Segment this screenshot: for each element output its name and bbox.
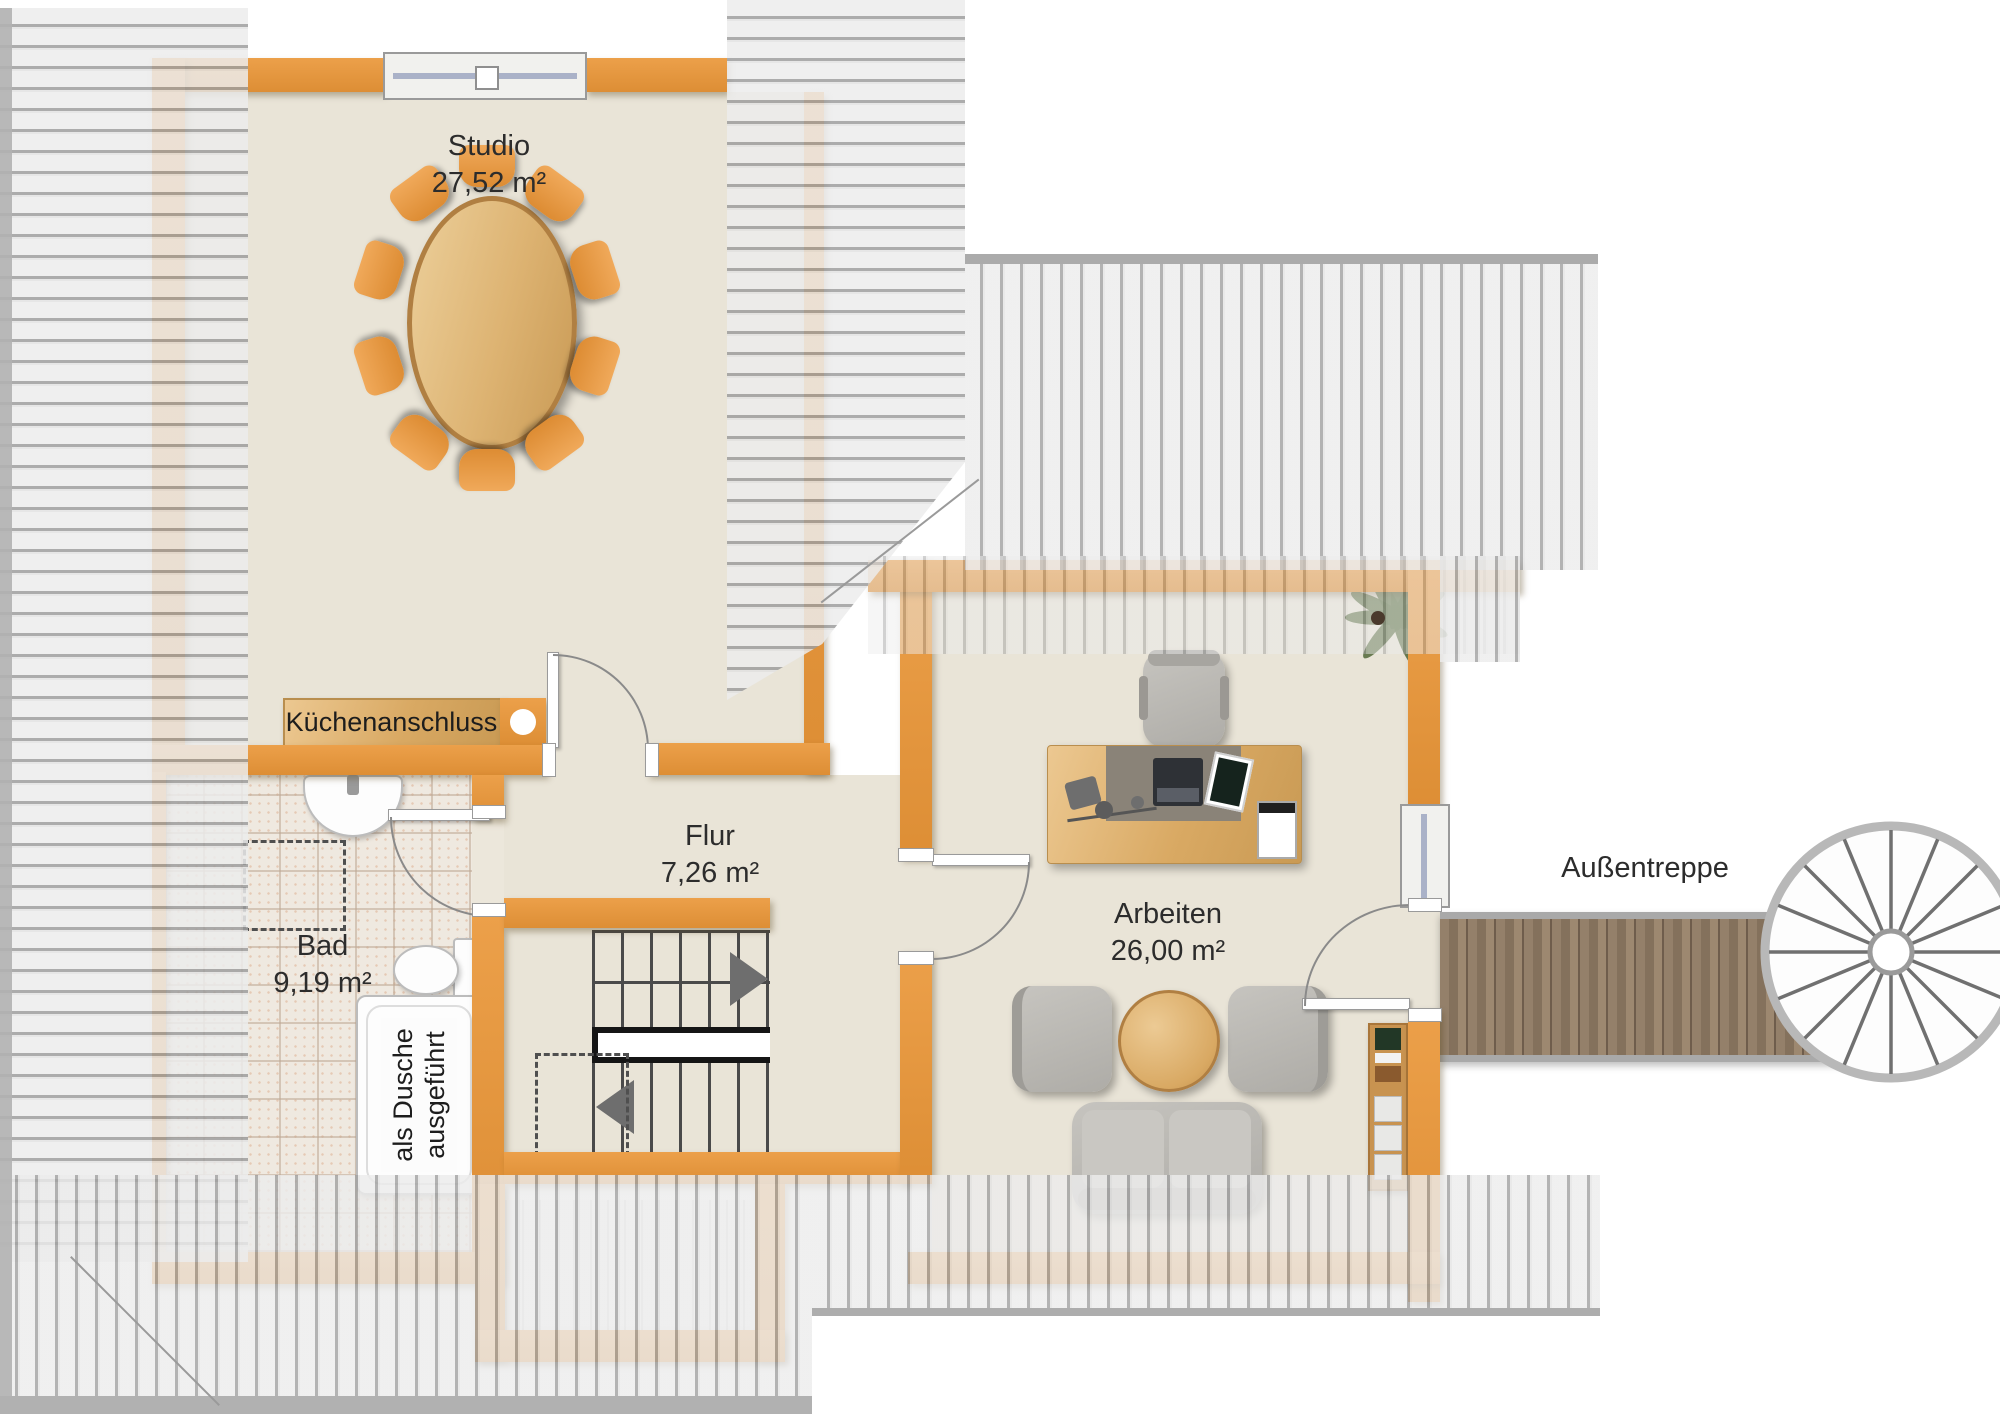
shower-outline xyxy=(243,840,346,931)
exit-door-opening-floor xyxy=(1408,908,1440,1010)
room-name: Flur xyxy=(625,818,795,855)
oval-table xyxy=(407,196,577,450)
desk-lamp-joint xyxy=(1095,801,1113,819)
room-area: 27,52 m² xyxy=(389,165,589,202)
floor-plan: als Dusche ausgeführt xyxy=(0,0,2000,1425)
annotation-text: Küchenanschluss xyxy=(283,706,500,738)
room-area: 26,00 m² xyxy=(1063,933,1273,970)
roof-right-block xyxy=(1440,556,1520,662)
studio-window xyxy=(383,52,587,100)
arbeiten-window xyxy=(1400,804,1450,908)
room-area: 9,19 m² xyxy=(240,965,405,1002)
desk xyxy=(1047,745,1302,864)
room-name: Bad xyxy=(240,928,405,965)
roof-bottom-right xyxy=(812,1175,1600,1316)
sink-faucet-icon xyxy=(347,775,359,795)
studio-wall-top-right xyxy=(585,58,727,92)
door-frame-cap xyxy=(1408,898,1442,912)
roof-edge-bottom xyxy=(0,1396,812,1414)
door-frame-cap xyxy=(542,743,556,777)
plant-center xyxy=(1371,611,1385,625)
door-frame-cap xyxy=(472,903,506,917)
stair-arrow-right-icon xyxy=(730,952,768,1006)
annotation-text: Außentreppe xyxy=(1510,850,1780,887)
stair-wall-top xyxy=(504,898,770,928)
stair-headroom-outline xyxy=(535,1053,629,1157)
spiral-staircase xyxy=(1758,810,2000,1094)
roof-top-right xyxy=(965,254,1598,570)
roof-edge-left xyxy=(0,8,12,1412)
shelf-box-brown xyxy=(1375,1066,1401,1082)
arbeiten-window-glass xyxy=(1421,814,1427,898)
aussentreppe-label: Außentreppe xyxy=(1510,850,1780,887)
table-chair xyxy=(459,449,515,491)
door-frame-cap xyxy=(1408,1008,1442,1022)
studio-label: Studio 27,52 m² xyxy=(389,128,589,202)
bathtub-shower: als Dusche ausgeführt xyxy=(356,995,482,1195)
kitchen-sink-connection xyxy=(510,709,536,735)
flur-arbeiten-wall-lower xyxy=(900,951,932,1184)
door-frame-cap xyxy=(898,951,934,965)
flur-wall-top xyxy=(647,743,830,775)
desk-lamp-head xyxy=(1131,796,1144,809)
bookshelf xyxy=(1368,1023,1408,1191)
coffee-table xyxy=(1118,990,1220,1092)
shelf-drawer-2 xyxy=(1374,1125,1402,1151)
arbeiten-door-opening-floor xyxy=(900,858,932,955)
door-frame-cap xyxy=(472,805,506,819)
room-name: Arbeiten xyxy=(1063,896,1273,933)
shelf-books-white xyxy=(1375,1053,1401,1063)
conference-table-group xyxy=(369,156,605,480)
arbeiten-label: Arbeiten 26,00 m² xyxy=(1063,896,1273,970)
kitchen-connection-label: Küchenanschluss xyxy=(283,706,500,738)
laptop xyxy=(1153,758,1203,806)
armchair-left xyxy=(1012,986,1112,1092)
room-name: Studio xyxy=(389,128,589,165)
roof-left xyxy=(0,8,248,1262)
roof-arbeiten-top-overlay xyxy=(868,556,1520,654)
shelf-drawer-1 xyxy=(1374,1096,1402,1122)
bad-label: Bad 9,19 m² xyxy=(240,928,405,1002)
studio-window-handle xyxy=(475,66,499,90)
office-chair xyxy=(1143,650,1225,748)
room-area: 7,26 m² xyxy=(625,855,795,892)
shelf-books-dark xyxy=(1375,1028,1401,1050)
flur-label: Flur 7,26 m² xyxy=(625,818,795,892)
door-frame-cap xyxy=(645,743,659,777)
roof-bottom xyxy=(0,1175,812,1412)
door-frame-cap xyxy=(898,848,934,862)
paper-tray xyxy=(1257,801,1297,859)
shower-note-label: als Dusche ausgeführt xyxy=(381,1018,457,1172)
